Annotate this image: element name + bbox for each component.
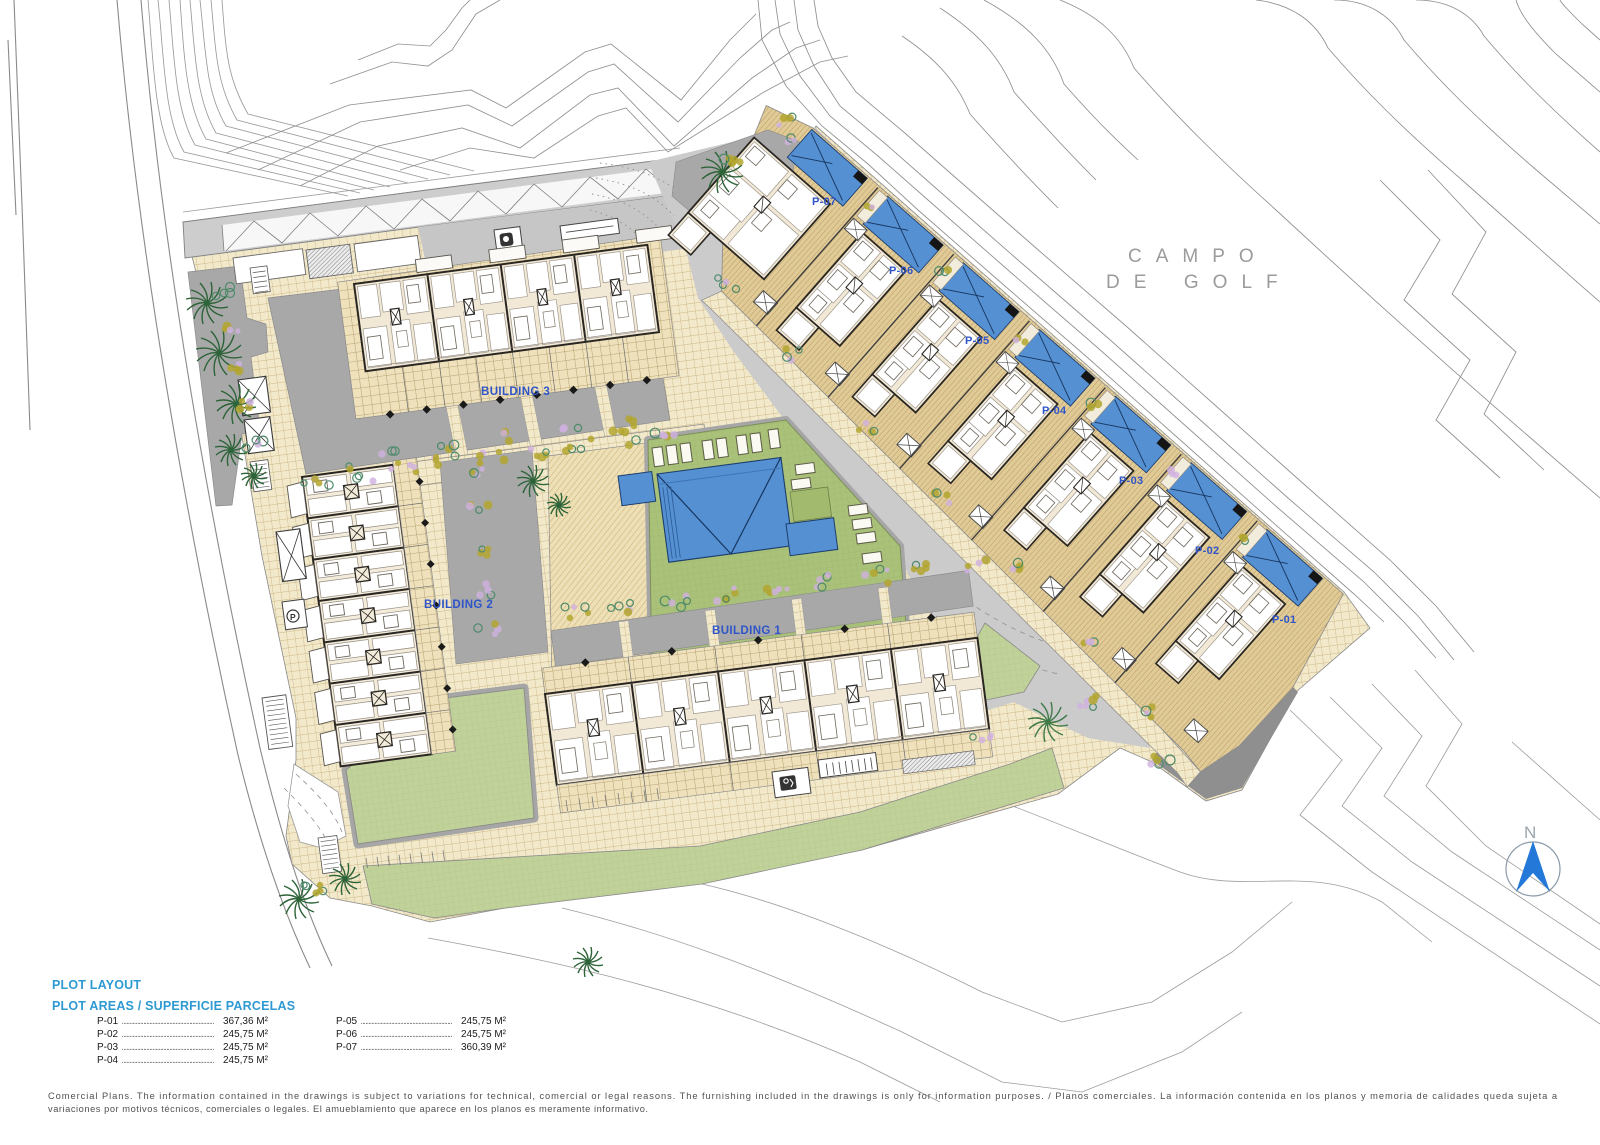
svg-text:BUILDING 3: BUILDING 3 xyxy=(481,386,550,398)
svg-text:P-07: P-07 xyxy=(812,196,836,208)
svg-text:..............................: ........................................… xyxy=(122,1016,214,1027)
svg-text:P-01: P-01 xyxy=(1272,614,1296,626)
svg-text:BUILDING 1: BUILDING 1 xyxy=(712,625,781,637)
svg-text:360,39 M²: 360,39 M² xyxy=(461,1042,507,1053)
svg-text:..............................: ........................................… xyxy=(122,1029,214,1040)
svg-text:P-07: P-07 xyxy=(336,1042,358,1053)
svg-text:245,75 M²: 245,75 M² xyxy=(223,1055,269,1066)
svg-text:P-04: P-04 xyxy=(1042,405,1067,417)
svg-text:..............................: ........................................… xyxy=(361,1042,452,1053)
svg-text:..............................: ........................................… xyxy=(361,1016,452,1027)
svg-text:245,75 M²: 245,75 M² xyxy=(223,1029,269,1040)
svg-text:CAMPO: CAMPO xyxy=(1128,246,1268,267)
svg-text:245,75 M²: 245,75 M² xyxy=(461,1029,507,1040)
svg-text:..............................: ........................................… xyxy=(122,1055,214,1066)
svg-text:PLOT LAYOUT: PLOT LAYOUT xyxy=(52,978,141,992)
svg-text:P-02: P-02 xyxy=(97,1029,119,1040)
svg-text:P-01: P-01 xyxy=(97,1016,119,1027)
svg-text:367,36 M²: 367,36 M² xyxy=(223,1016,269,1027)
svg-text:P: P xyxy=(290,612,296,622)
svg-text:P-05: P-05 xyxy=(336,1016,358,1027)
svg-text:P-02: P-02 xyxy=(1195,545,1219,557)
svg-text:P-06: P-06 xyxy=(336,1029,358,1040)
svg-text:245,75 M²: 245,75 M² xyxy=(461,1016,507,1027)
svg-text:..............................: ........................................… xyxy=(361,1029,452,1040)
svg-text:N: N xyxy=(1524,823,1536,842)
svg-text:P-03: P-03 xyxy=(1119,475,1143,487)
svg-text:PLOT AREAS / SUPERFICIE PARCEL: PLOT AREAS / SUPERFICIE PARCELAS xyxy=(52,999,295,1013)
svg-text:variaciones por motivos técnic: variaciones por motivos técnicos, comerc… xyxy=(48,1104,648,1114)
svg-text:P-06: P-06 xyxy=(889,265,913,277)
svg-text:Comercial Plans. The informati: Comercial Plans. The information contain… xyxy=(48,1091,1558,1101)
svg-text:..............................: ........................................… xyxy=(122,1042,214,1053)
svg-text:P-03: P-03 xyxy=(97,1042,119,1053)
svg-text:P-05: P-05 xyxy=(965,335,989,347)
svg-text:BUILDING 2: BUILDING 2 xyxy=(424,599,493,611)
svg-text:DE GOLF: DE GOLF xyxy=(1106,272,1292,293)
svg-text:245,75 M²: 245,75 M² xyxy=(223,1042,269,1053)
svg-text:P-04: P-04 xyxy=(97,1055,119,1066)
